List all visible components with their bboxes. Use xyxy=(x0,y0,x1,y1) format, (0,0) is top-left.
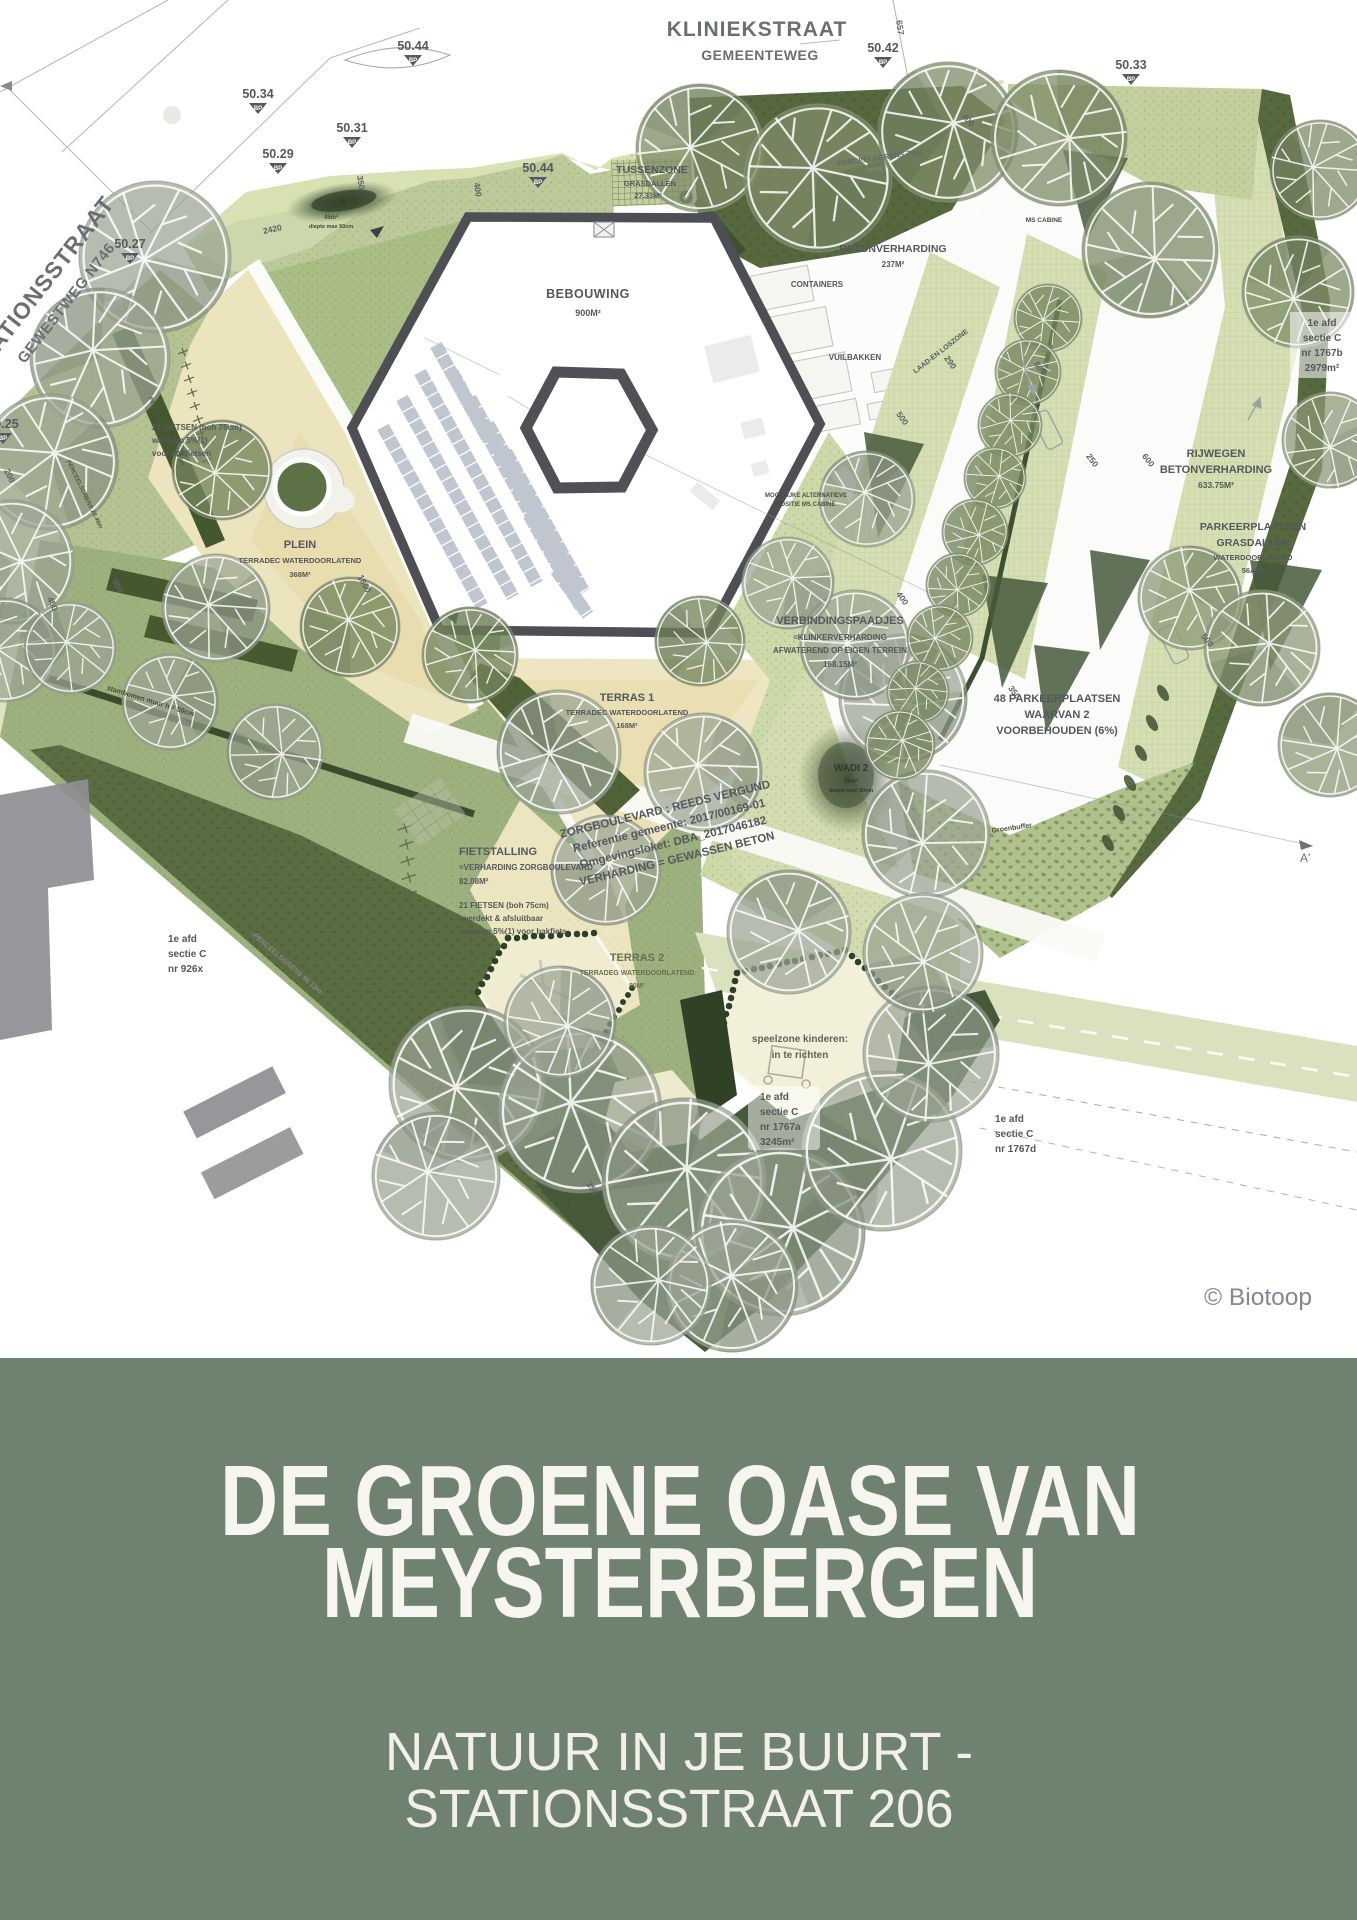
svg-text:AFWATEREND OP EIGEN TERREIN: AFWATEREND OP EIGEN TERREIN xyxy=(773,646,907,655)
svg-text:50.27: 50.27 xyxy=(114,237,145,251)
svg-text:VOORBEHOUDEN (6%): VOORBEHOUDEN (6%) xyxy=(996,725,1118,737)
svg-text:=KLINKERVERHARDING: =KLINKERVERHARDING xyxy=(793,633,887,642)
svg-text:56AM²: 56AM² xyxy=(1242,566,1265,575)
svg-text:PARKEERPLAATSEN: PARKEERPLAATSEN xyxy=(1200,521,1306,533)
svg-text:MS CABINE: MS CABINE xyxy=(1026,217,1063,224)
svg-text:A': A' xyxy=(1300,851,1310,865)
svg-text:BP: BP xyxy=(879,60,887,66)
svg-text:GRASDALLEN: GRASDALLEN xyxy=(624,179,676,188)
svg-text:VERBINDINGSPAADJES: VERBINDINGSPAADJES xyxy=(776,615,904,627)
svg-text:sectie C: sectie C xyxy=(760,1107,798,1118)
svg-text:2979m²: 2979m² xyxy=(1305,363,1340,374)
svg-text:900M²: 900M² xyxy=(575,308,601,318)
svg-text:nr 1767d: nr 1767d xyxy=(995,1144,1036,1155)
svg-text:WATERDOORLATEND: WATERDOORLATEND xyxy=(1214,553,1293,562)
svg-text:STATIONSSTRAAT 206: STATIONSSTRAAT 206 xyxy=(405,1779,954,1839)
svg-text:50.44: 50.44 xyxy=(522,161,553,175)
svg-text:WADI 2: WADI 2 xyxy=(834,763,869,774)
svg-text:PLEIN: PLEIN xyxy=(284,539,316,551)
svg-text:633.75M²: 633.75M² xyxy=(1198,480,1234,490)
svg-text:400: 400 xyxy=(472,182,484,198)
svg-text:TERRADEG WATERDOORLATEND: TERRADEG WATERDOORLATEND xyxy=(580,970,695,977)
svg-text:TERRADEC WATERDOORLATEND: TERRADEC WATERDOORLATEND xyxy=(566,708,689,717)
svg-text:1e afd: 1e afd xyxy=(1308,318,1337,329)
svg-text:BP: BP xyxy=(254,106,262,112)
svg-text:657: 657 xyxy=(894,19,906,35)
svg-text:50.34: 50.34 xyxy=(242,87,273,101)
svg-text:diepte max 50cm: diepte max 50cm xyxy=(309,224,353,230)
svg-text:BP: BP xyxy=(534,180,542,186)
svg-text:50.31: 50.31 xyxy=(336,121,367,135)
svg-text:overdekt & afsluitbaar: overdekt & afsluitbaar xyxy=(459,914,543,923)
svg-text:50.29: 50.29 xyxy=(262,147,293,161)
svg-text:TERRAS 2: TERRAS 2 xyxy=(610,952,664,964)
svg-text:80M²: 80M² xyxy=(629,983,646,990)
svg-text:sectie C: sectie C xyxy=(1303,333,1341,344)
svg-text:27.33M²: 27.33M² xyxy=(634,191,662,200)
svg-text:368M²: 368M² xyxy=(289,570,311,579)
svg-text:35m²: 35m² xyxy=(844,778,858,785)
svg-text:BP: BP xyxy=(274,166,282,172)
svg-text:1e afd: 1e afd xyxy=(995,1114,1024,1125)
svg-text:VUILBAKKEN: VUILBAKKEN xyxy=(829,353,882,362)
svg-text:CONTAINERS: CONTAINERS xyxy=(791,280,844,289)
svg-text:1e afd: 1e afd xyxy=(760,1092,789,1103)
svg-text:TERRAS 1: TERRAS 1 xyxy=(600,692,654,704)
svg-text:BP: BP xyxy=(409,58,417,64)
svg-text:waarvan 5%(1): waarvan 5%(1) xyxy=(151,436,208,445)
svg-text:50.44: 50.44 xyxy=(397,39,428,53)
svg-text:50.25: 50.25 xyxy=(0,417,19,431)
svg-text:168.15M²: 168.15M² xyxy=(823,660,857,669)
svg-text:MEYSTERBERGEN: MEYSTERBERGEN xyxy=(322,1527,1038,1639)
svg-text:350: 350 xyxy=(355,175,367,191)
svg-text:FIETSTALLING: FIETSTALLING xyxy=(459,846,537,858)
svg-text:237M²: 237M² xyxy=(882,260,905,269)
svg-text:BP: BP xyxy=(348,140,356,146)
svg-text:TERRADEC WATERDOORLATEND: TERRADEC WATERDOORLATEND xyxy=(239,556,362,565)
svg-text:45m²: 45m² xyxy=(324,214,338,221)
svg-text:82.08M²: 82.08M² xyxy=(459,877,489,886)
svg-text:in te richten: in te richten xyxy=(772,1050,829,1061)
svg-text:21 FIETSEN (boh 75cm): 21 FIETSEN (boh 75cm) xyxy=(459,901,549,910)
svg-text:nr 1767b: nr 1767b xyxy=(1301,348,1342,359)
svg-text:KLINIEKSTRAAT: KLINIEKSTRAAT xyxy=(667,18,848,41)
svg-text:50.42: 50.42 xyxy=(867,41,898,55)
svg-text:RIJWEGEN: RIJWEGEN xyxy=(1187,448,1246,460)
svg-text:TUSSENZONE: TUSSENZONE xyxy=(616,164,688,176)
svg-text:BP: BP xyxy=(0,436,7,442)
svg-text:sectie C: sectie C xyxy=(168,949,206,960)
svg-text:50.33: 50.33 xyxy=(1115,58,1146,72)
svg-text:WAARVAN 2: WAARVAN 2 xyxy=(1025,709,1090,721)
svg-text:=VERHARDING ZORGBOULEVARD: =VERHARDING ZORGBOULEVARD xyxy=(459,863,593,872)
svg-text:BEBOUWING: BEBOUWING xyxy=(546,287,630,301)
svg-text:waarvan 5%(1) voor bakfiets: waarvan 5%(1) voor bakfiets xyxy=(458,927,567,936)
svg-text:speelzone kinderen:: speelzone kinderen: xyxy=(752,1034,848,1045)
svg-text:© Biotoop: © Biotoop xyxy=(1204,1284,1312,1311)
svg-text:BP: BP xyxy=(126,256,134,262)
svg-text:3245m²: 3245m² xyxy=(760,1137,795,1148)
svg-text:diepte max 50cm: diepte max 50cm xyxy=(829,788,873,794)
svg-text:BETONVERHARDING: BETONVERHARDING xyxy=(1160,464,1272,476)
svg-text:GEMEENTEWEG: GEMEENTEWEG xyxy=(701,47,819,63)
svg-text:BP: BP xyxy=(1127,77,1135,83)
svg-text:sectie C: sectie C xyxy=(995,1129,1033,1140)
svg-text:BETONVERHARDING: BETONVERHARDING xyxy=(839,243,946,255)
svg-text:1e afd: 1e afd xyxy=(168,934,197,945)
svg-text:MOGELIJKE ALTERNATIEVE: MOGELIJKE ALTERNATIEVE xyxy=(765,493,847,499)
svg-text:168M²: 168M² xyxy=(616,721,638,730)
svg-text:NATUUR IN JE BUURT -: NATUUR IN JE BUURT - xyxy=(385,1722,973,1782)
svg-text:POSITIE MS CABINE: POSITIE MS CABINE xyxy=(776,502,835,508)
svg-text:nr 1767a: nr 1767a xyxy=(760,1122,801,1133)
svg-text:WADI 1: WADI 1 xyxy=(316,198,351,209)
svg-text:nr 926x: nr 926x xyxy=(168,964,203,975)
svg-text:GRASDALLEN: GRASDALLEN xyxy=(1217,537,1290,549)
